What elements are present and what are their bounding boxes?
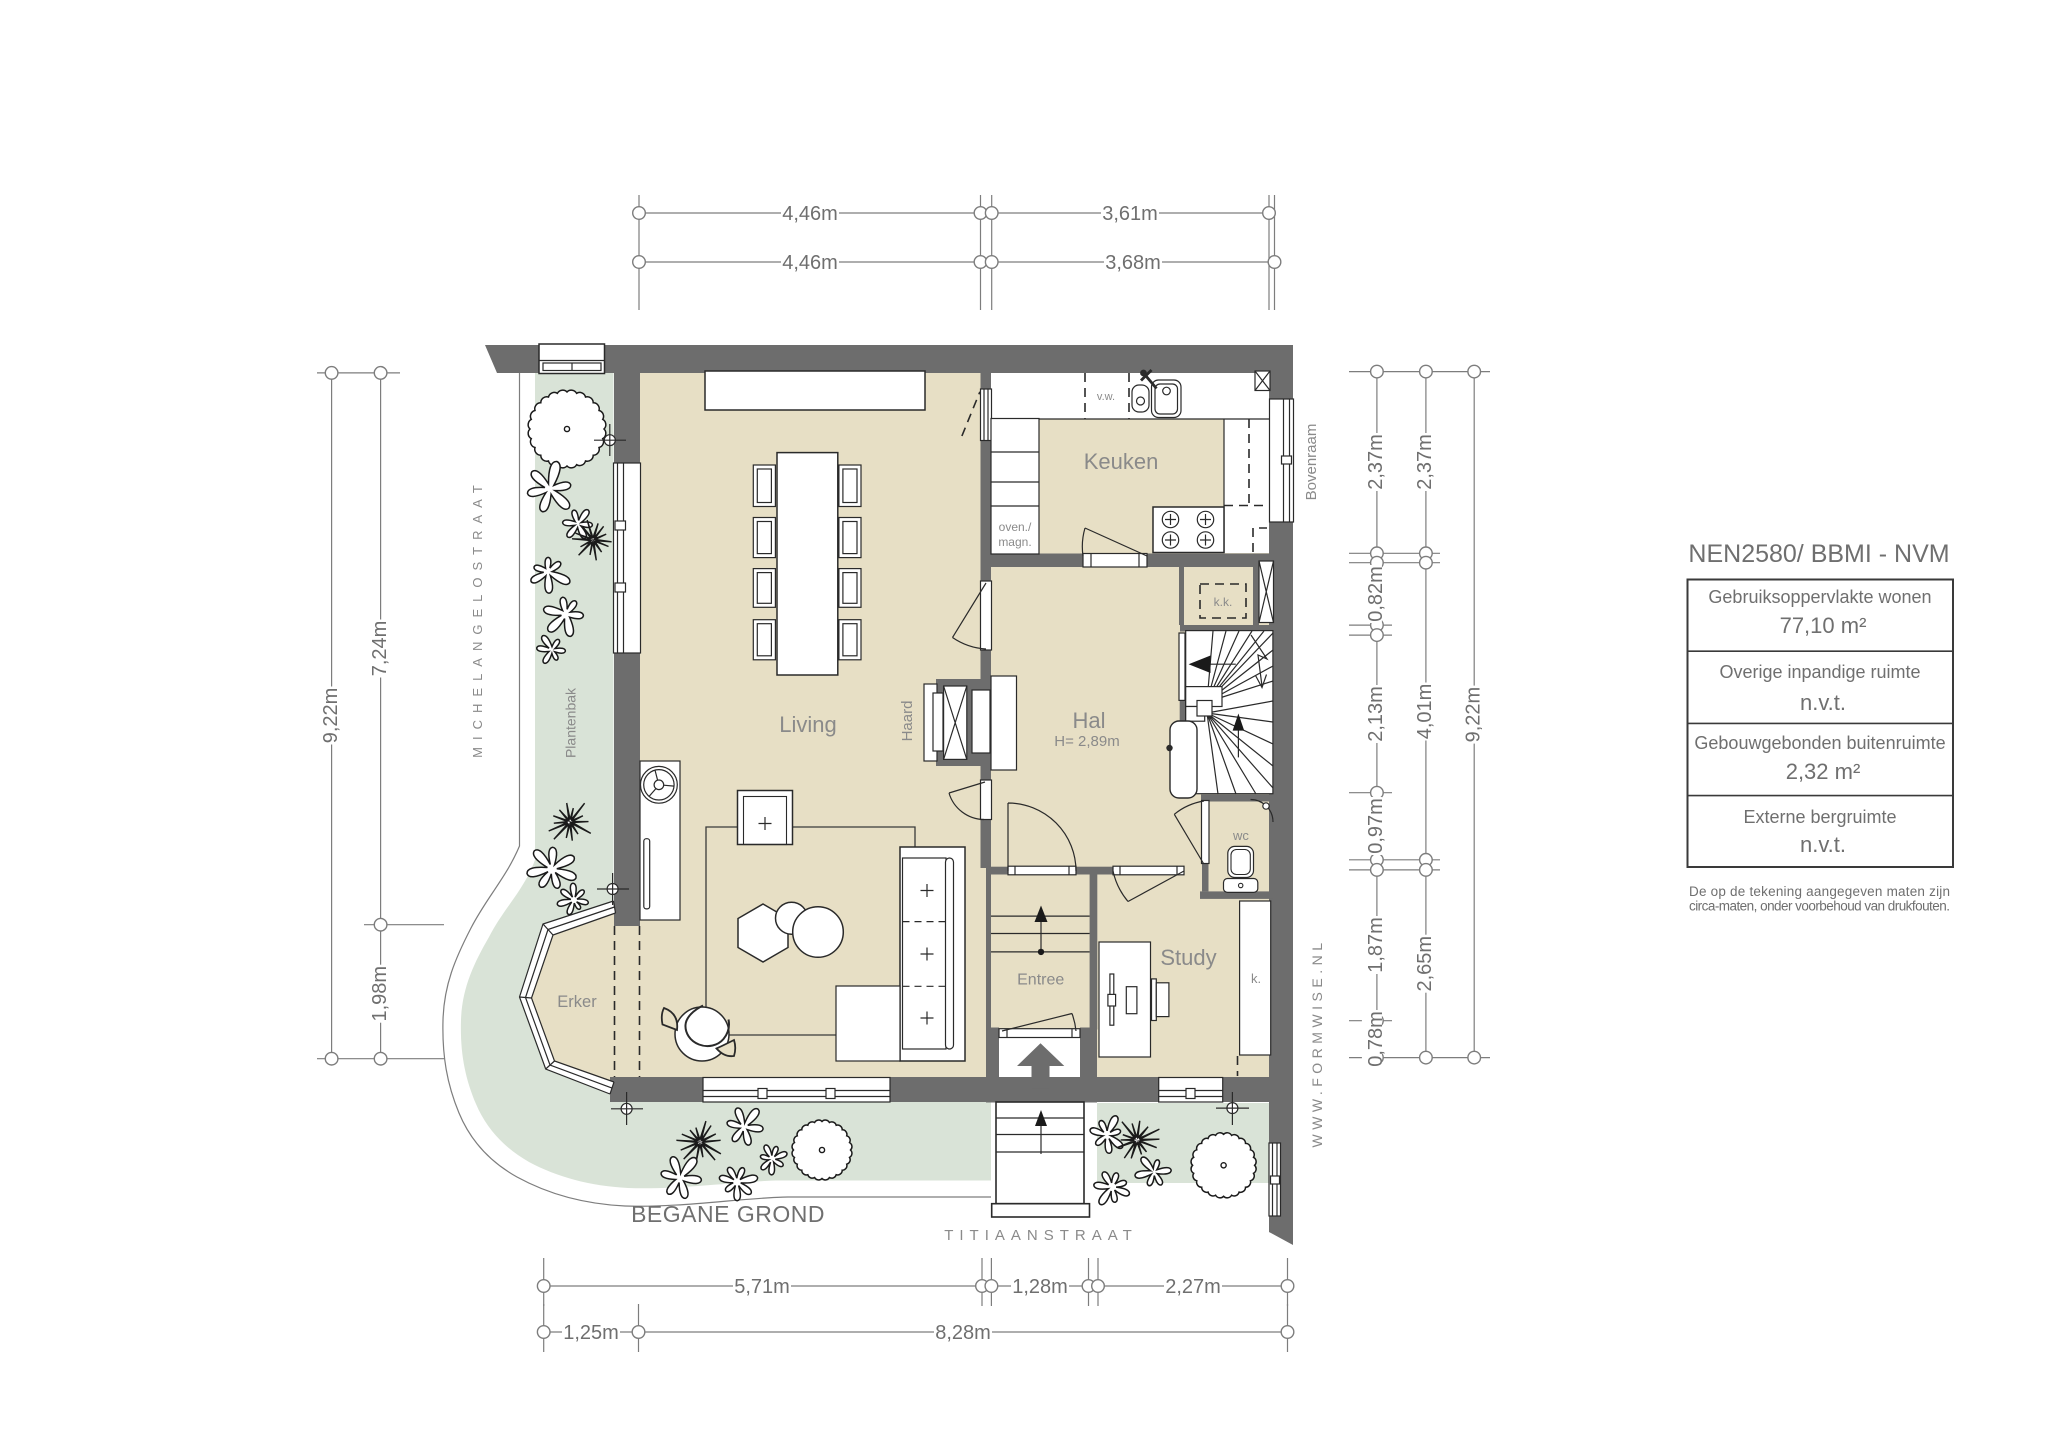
svg-text:H= 2,89m: H= 2,89m bbox=[1054, 733, 1119, 750]
svg-text:Gebouwgebonden buitenruimte: Gebouwgebonden buitenruimte bbox=[1694, 733, 1945, 753]
svg-text:2,37m: 2,37m bbox=[1365, 434, 1387, 490]
svg-text:Externe bergruimte: Externe bergruimte bbox=[1743, 807, 1896, 827]
svg-text:Study: Study bbox=[1160, 945, 1216, 970]
svg-text:Gebruiksoppervlakte wonen: Gebruiksoppervlakte wonen bbox=[1708, 587, 1931, 607]
svg-text:n.v.t.: n.v.t. bbox=[1800, 832, 1846, 857]
svg-text:Plantenbak: Plantenbak bbox=[563, 687, 579, 758]
svg-text:1,25m: 1,25m bbox=[563, 1322, 619, 1344]
svg-text:1,28m: 1,28m bbox=[1012, 1276, 1068, 1298]
svg-text:9,22m: 9,22m bbox=[320, 688, 342, 744]
svg-text:1,98m: 1,98m bbox=[369, 966, 391, 1022]
svg-text:k.: k. bbox=[1251, 971, 1261, 986]
svg-text:k.k.: k.k. bbox=[1214, 595, 1233, 609]
svg-text:BEGANE GROND: BEGANE GROND bbox=[631, 1201, 825, 1227]
svg-text:2,13m: 2,13m bbox=[1365, 686, 1387, 742]
svg-text:3,68m: 3,68m bbox=[1105, 252, 1161, 274]
svg-text:Hal: Hal bbox=[1072, 708, 1105, 733]
svg-text:circa-maten, onder voorbehoud: circa-maten, onder voorbehoud van drukfo… bbox=[1689, 899, 1950, 914]
svg-text:77,10 m²: 77,10 m² bbox=[1780, 613, 1867, 638]
svg-text:MICHELANGELOSTRAAT: MICHELANGELOSTRAAT bbox=[470, 478, 485, 758]
svg-text:0,82m: 0,82m bbox=[1365, 566, 1387, 622]
svg-text:Keuken: Keuken bbox=[1084, 449, 1159, 474]
svg-text:2,32 m²: 2,32 m² bbox=[1786, 759, 1861, 784]
svg-text:WWW.FORMWISE.NL: WWW.FORMWISE.NL bbox=[1309, 938, 1325, 1147]
svg-text:4,01m: 4,01m bbox=[1414, 684, 1436, 740]
svg-text:4,46m: 4,46m bbox=[782, 203, 838, 225]
svg-text:0,78m: 0,78m bbox=[1365, 1011, 1387, 1067]
svg-text:5,71m: 5,71m bbox=[734, 1276, 790, 1298]
svg-text:NEN2580/ BBMI - NVM: NEN2580/ BBMI - NVM bbox=[1688, 540, 1949, 568]
svg-text:9,22m: 9,22m bbox=[1462, 687, 1484, 743]
svg-text:0,97m: 0,97m bbox=[1365, 798, 1387, 854]
svg-text:Haard: Haard bbox=[899, 701, 916, 742]
svg-text:magn.: magn. bbox=[998, 535, 1031, 549]
svg-text:4,46m: 4,46m bbox=[782, 252, 838, 274]
svg-text:3,61m: 3,61m bbox=[1102, 203, 1158, 225]
svg-text:7,24m: 7,24m bbox=[369, 621, 391, 677]
svg-text:n.v.t.: n.v.t. bbox=[1800, 690, 1846, 715]
svg-text:TITIAANSTRAAT: TITIAANSTRAAT bbox=[944, 1227, 1138, 1244]
svg-text:De op de tekening aangegeven m: De op de tekening aangegeven maten zijn bbox=[1689, 884, 1950, 899]
svg-text:8,28m: 8,28m bbox=[935, 1322, 991, 1344]
svg-text:wc: wc bbox=[1232, 828, 1249, 843]
svg-text:1,87m: 1,87m bbox=[1365, 917, 1387, 973]
svg-text:Living: Living bbox=[779, 712, 836, 737]
svg-text:2,65m: 2,65m bbox=[1414, 936, 1436, 992]
svg-text:2,37m: 2,37m bbox=[1414, 434, 1436, 490]
svg-text:Overige inpandige ruimte: Overige inpandige ruimte bbox=[1719, 662, 1920, 682]
svg-text:Bovenraam: Bovenraam bbox=[1303, 424, 1320, 501]
svg-text:oven./: oven./ bbox=[999, 520, 1032, 534]
svg-text:Erker: Erker bbox=[557, 993, 597, 1011]
svg-text:v.w.: v.w. bbox=[1097, 391, 1115, 403]
svg-text:2,27m: 2,27m bbox=[1165, 1276, 1221, 1298]
svg-text:Entree: Entree bbox=[1017, 972, 1064, 989]
